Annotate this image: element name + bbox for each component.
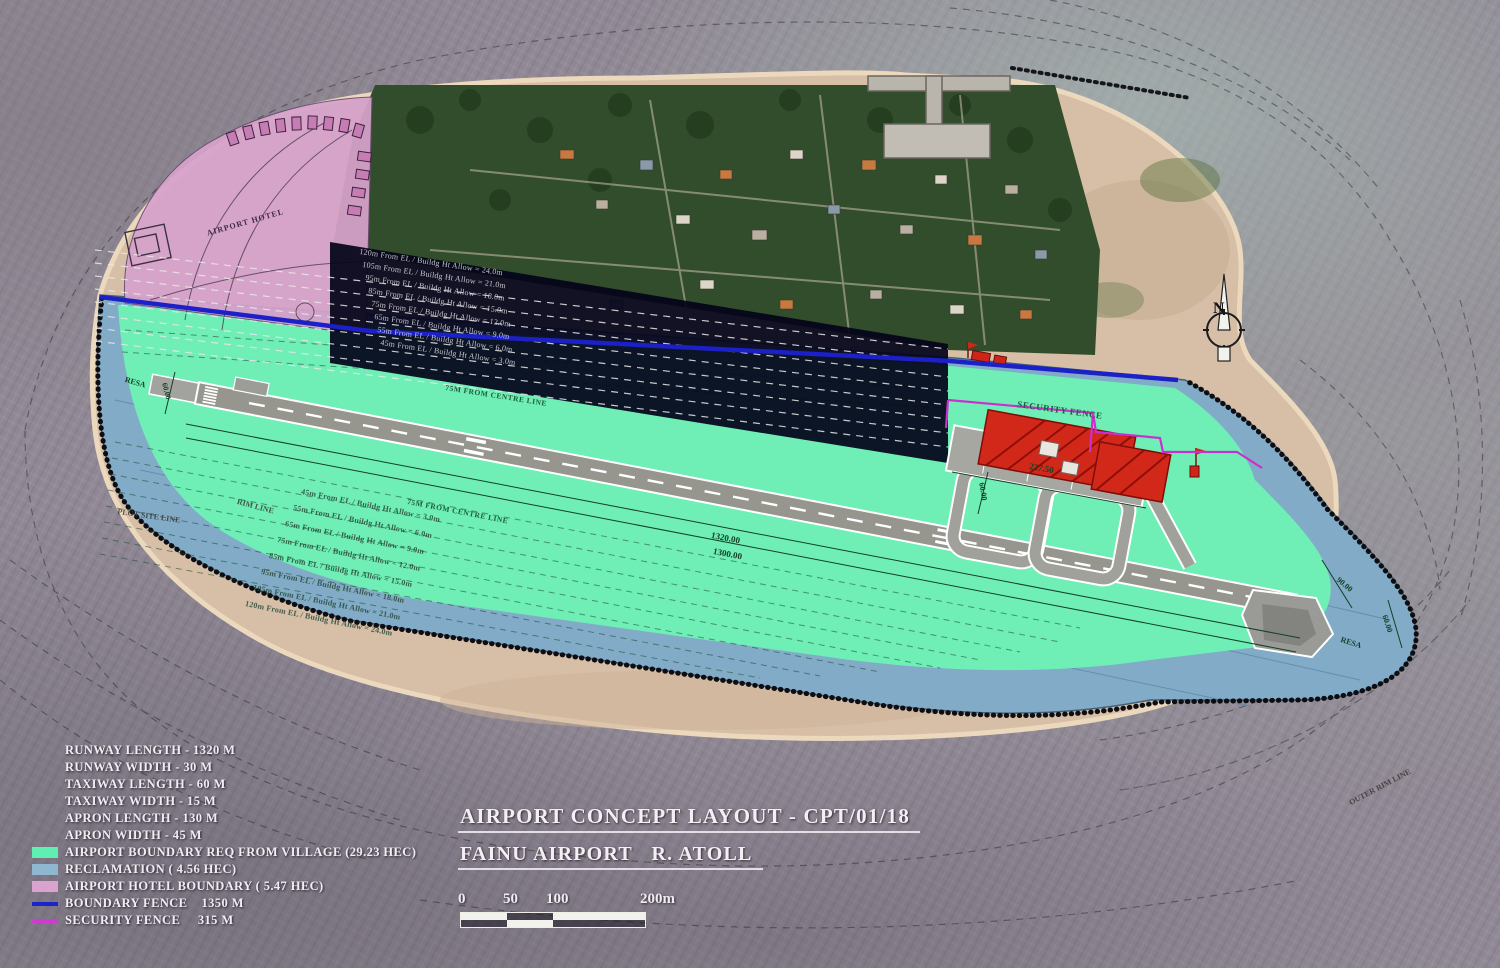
legend-item-row: AIRPORT BOUNDARY REQ FROM VILLAGE (29.23… — [32, 844, 416, 861]
legend-swatch-security-fence — [32, 919, 58, 923]
legend-swatch-pink — [32, 881, 58, 892]
scale-segment — [507, 920, 553, 927]
drawing-title: AIRPORT CONCEPT LAYOUT - CPT/01/18 — [458, 806, 920, 833]
scale-segment — [461, 913, 507, 920]
legend-spec-row: APRON LENGTH - 130 M — [32, 810, 416, 827]
scale-tick-50: 50 — [503, 892, 518, 907]
legend-swatch-green — [32, 847, 58, 858]
airport-name: FAINU AIRPORT R. ATOLL — [458, 844, 763, 870]
legend-item-text: SECURITY FENCE 315 M — [65, 913, 234, 928]
taxiway-loop-dim: 60.00 — [977, 482, 988, 501]
legend-spec-row: TAXIWAY WIDTH - 15 M — [32, 793, 416, 810]
scale-tick-100: 100 — [546, 892, 569, 907]
scale-segment — [507, 913, 553, 920]
legend-swatch-blue — [32, 864, 58, 875]
legend-spec-text: APRON WIDTH - 45 M — [65, 828, 202, 843]
north-label: N — [1213, 300, 1225, 318]
drawing-title-line2: FAINU AIRPORT R. ATOLL — [458, 844, 763, 870]
legend-spec-text: RUNWAY LENGTH - 1320 M — [65, 743, 235, 758]
scale-tick-200: 200m — [640, 892, 675, 907]
scale-segment — [553, 913, 645, 920]
scale-tick-0: 0 — [458, 892, 466, 907]
legend-item-text: RECLAMATION ( 4.56 HEC) — [65, 862, 236, 877]
map-canvas: AIRPORT HOTEL SECURITY FENCE 75M FROM CE… — [0, 0, 1500, 968]
legend: RUNWAY LENGTH - 1320 M RUNWAY WIDTH - 30… — [32, 742, 416, 929]
legend-spec-row: RUNWAY WIDTH - 30 M — [32, 759, 416, 776]
legend-item-text: AIRPORT BOUNDARY REQ FROM VILLAGE (29.23… — [65, 845, 416, 860]
legend-swatch-boundary-fence — [32, 902, 58, 906]
legend-spec-row: APRON WIDTH - 45 M — [32, 827, 416, 844]
legend-item-row: BOUNDARY FENCE 1350 M — [32, 895, 416, 912]
legend-spec-text: TAXIWAY LENGTH - 60 M — [65, 777, 226, 792]
scale-segment — [461, 920, 507, 927]
legend-item-row: RECLAMATION ( 4.56 HEC) — [32, 861, 416, 878]
north-arrow — [1192, 272, 1262, 372]
scale-segment — [553, 920, 645, 927]
drawing-title-line1: AIRPORT CONCEPT LAYOUT - CPT/01/18 — [458, 806, 920, 833]
legend-spec-text: APRON LENGTH - 130 M — [65, 811, 218, 826]
legend-spec-row: RUNWAY LENGTH - 1320 M — [32, 742, 416, 759]
legend-item-row: AIRPORT HOTEL BOUNDARY ( 5.47 HEC) — [32, 878, 416, 895]
legend-spec-text: TAXIWAY WIDTH - 15 M — [65, 794, 216, 809]
legend-item-text: AIRPORT HOTEL BOUNDARY ( 5.47 HEC) — [65, 879, 324, 894]
legend-item-text: BOUNDARY FENCE 1350 M — [65, 896, 244, 911]
legend-item-row: SECURITY FENCE 315 M — [32, 912, 416, 929]
legend-spec-row: TAXIWAY LENGTH - 60 M — [32, 776, 416, 793]
legend-spec-text: RUNWAY WIDTH - 30 M — [65, 760, 212, 775]
scale-bar — [460, 912, 646, 928]
